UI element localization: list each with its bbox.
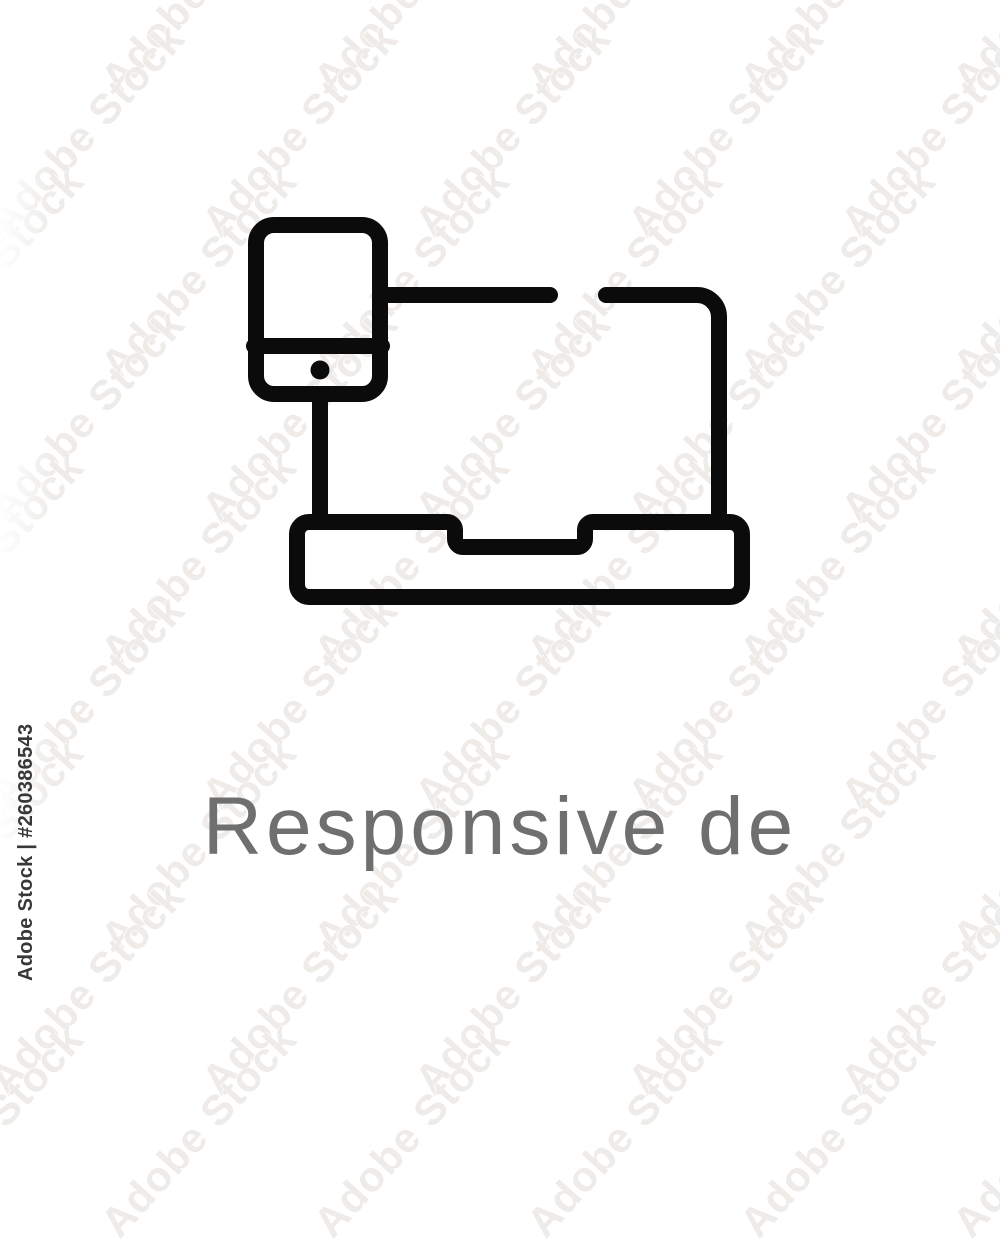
laptop-top-edge-right-segment: [606, 295, 719, 516]
adobe-stock-watermark-text: Adobe Stock: [943, 0, 1000, 103]
adobe-stock-watermark-text: Adobe Stock: [0, 0, 93, 103]
adobe-stock-watermark-text: Adobe Stock: [304, 1015, 519, 1246]
adobe-stock-watermark-text: Adobe Stock: [831, 586, 1000, 817]
adobe-stock-watermark-text: Adobe Stock: [0, 157, 93, 388]
adobe-stock-watermark-text: Adobe Stock: [91, 1015, 306, 1246]
adobe-stock-watermark-text: Adobe Stock: [192, 872, 407, 1103]
adobe-stock-watermark-text: Adobe Stock: [405, 872, 620, 1103]
adobe-stock-watermark-text: Adobe Stock: [0, 14, 194, 245]
adobe-stock-watermark-text: Adobe Stock: [730, 443, 945, 674]
adobe-stock-watermark-text: Adobe Stock: [0, 300, 194, 531]
stock-attribution-text: Adobe Stock | #260386543: [15, 724, 38, 981]
laptop-base: [297, 522, 742, 597]
adobe-stock-watermark-text: Adobe Stock: [831, 14, 1000, 245]
adobe-stock-watermark-text: Adobe Stock: [943, 1015, 1000, 1246]
adobe-stock-watermark-text: Adobe Stock: [943, 443, 1000, 674]
adobe-stock-watermark-text: Adobe Stock: [0, 443, 93, 674]
adobe-stock-watermark-text: Adobe Stock: [730, 1015, 945, 1246]
responsive-design-icon: [240, 210, 760, 615]
adobe-stock-watermark-text: Adobe Stock: [730, 0, 945, 103]
adobe-stock-watermark-text: Adobe Stock: [730, 157, 945, 388]
adobe-stock-watermark-text: Adobe Stock: [831, 300, 1000, 531]
stock-image-preview: Adobe StockAdobe StockAdobe StockAdobe S…: [0, 0, 1000, 1000]
adobe-stock-watermark-text: Adobe Stock: [517, 1015, 732, 1246]
adobe-stock-watermark-text: Adobe Stock: [91, 0, 306, 103]
adobe-stock-watermark-text: Adobe Stock: [943, 157, 1000, 388]
smartphone-home-button-dot: [311, 361, 330, 380]
adobe-stock-watermark-text: Adobe Stock: [0, 1015, 93, 1246]
adobe-stock-watermark-text: Adobe Stock: [517, 0, 732, 103]
adobe-stock-watermark-text: Adobe Stock: [304, 0, 519, 103]
adobe-stock-watermark-text: Adobe Stock: [831, 872, 1000, 1103]
adobe-stock-watermark-text: Adobe Stock: [618, 872, 833, 1103]
icon-caption: Responsive de: [0, 784, 1000, 871]
